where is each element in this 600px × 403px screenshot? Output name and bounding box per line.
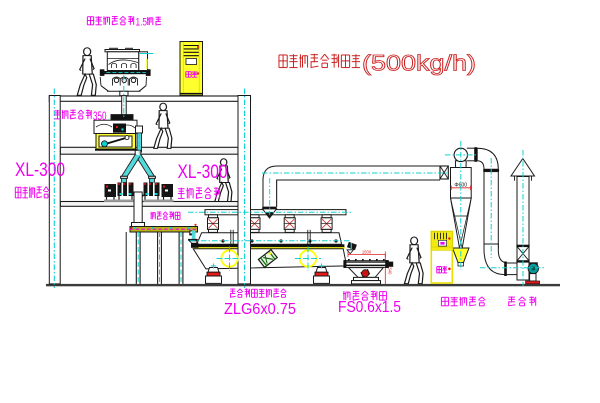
svg-text:540: 540 <box>388 268 393 276</box>
svg-text:ZLG6x0.75: ZLG6x0.75 <box>224 301 296 318</box>
svg-text:XL-300: XL-300 <box>15 159 65 181</box>
svg-text:1500: 1500 <box>362 249 372 254</box>
svg-text:XL-300: XL-300 <box>178 161 228 183</box>
svg-text:1.5: 1.5 <box>136 16 148 28</box>
svg-text:FS0.6x1.5: FS0.6x1.5 <box>338 299 401 316</box>
svg-text:(500kg/h): (500kg/h) <box>362 51 476 76</box>
svg-text:350: 350 <box>93 109 107 123</box>
